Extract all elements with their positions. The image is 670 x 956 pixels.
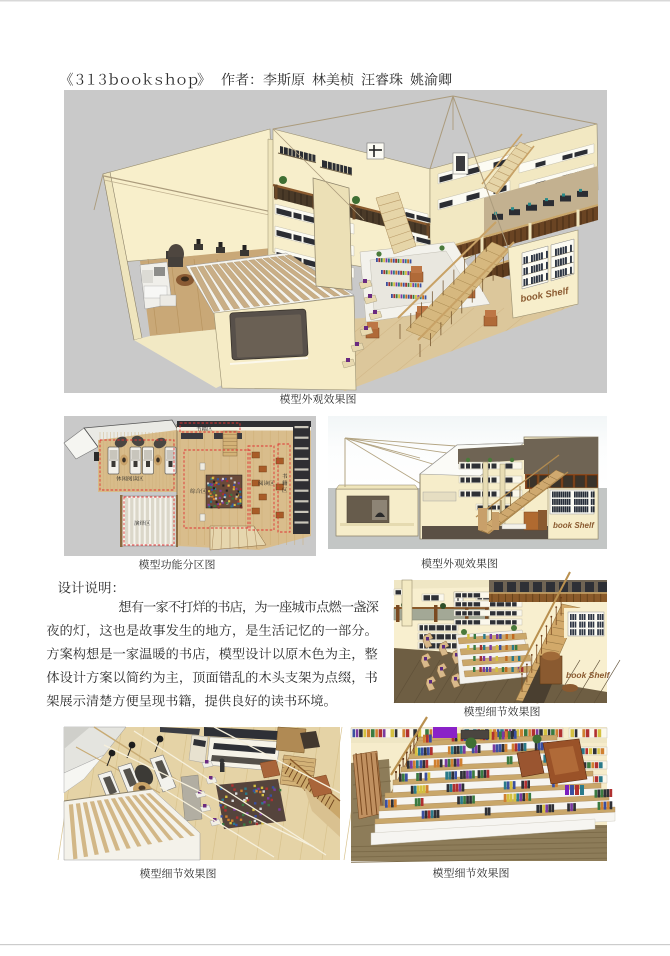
svg-text:book Shelf: book Shelf bbox=[553, 521, 595, 530]
svg-text:book Shelf: book Shelf bbox=[566, 670, 611, 680]
